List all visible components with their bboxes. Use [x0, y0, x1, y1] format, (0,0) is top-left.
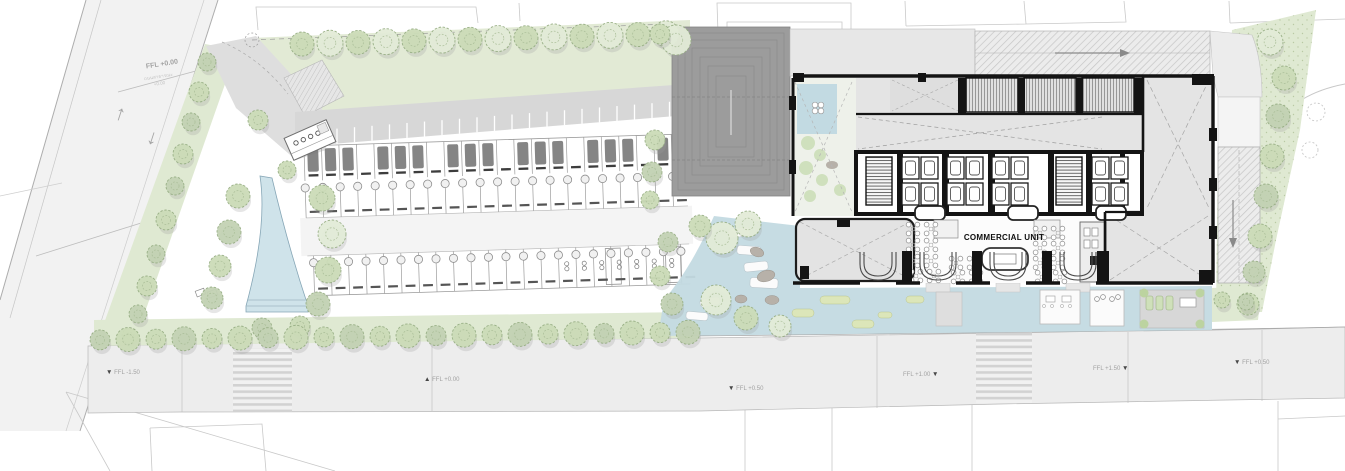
tree-canopy [769, 315, 791, 337]
lift-car [921, 157, 938, 179]
planter-circle [397, 256, 405, 264]
planter-circle [528, 177, 536, 185]
wheel-stop [625, 201, 635, 204]
tree-canopy [317, 30, 343, 56]
parked-car [412, 145, 424, 168]
chair [906, 238, 911, 243]
planter-circle [336, 183, 344, 191]
tree-canopy [597, 22, 623, 48]
stall-divider [463, 184, 464, 213]
chair [924, 222, 929, 227]
chair [1060, 226, 1065, 231]
chair [924, 231, 929, 236]
planter-circle [511, 177, 519, 185]
chair [1042, 235, 1047, 240]
stall-divider [391, 143, 392, 178]
chair [1033, 250, 1038, 255]
wheel-stop [336, 287, 346, 290]
tree-canopy [734, 306, 758, 330]
wheel-stop [388, 285, 398, 288]
tree-canopy [620, 321, 644, 345]
chair [1042, 226, 1047, 231]
tree-canopy [661, 293, 683, 315]
lift-car [1011, 157, 1028, 179]
stall-divider [428, 185, 429, 214]
wheel-stop [598, 278, 608, 281]
chair [1033, 226, 1038, 231]
tree-canopy [429, 27, 455, 53]
stall-divider [549, 138, 550, 173]
wheel-stop [563, 280, 573, 283]
parked-car [587, 140, 599, 163]
stall-divider [603, 180, 604, 209]
tree-canopy [676, 320, 700, 344]
tree-canopy [538, 324, 558, 344]
wheel-stop [588, 165, 598, 168]
tree-canopy [650, 323, 670, 343]
planter-circle [379, 256, 387, 264]
stall-divider [514, 139, 515, 174]
tree-canopy [452, 323, 476, 347]
stall-divider [393, 186, 394, 215]
stall-divider [445, 185, 446, 214]
stall-divider [515, 182, 516, 211]
stall-divider [480, 183, 481, 212]
stall-divider [479, 140, 480, 175]
building [789, 29, 1262, 284]
stair-flight [1056, 157, 1082, 205]
planter-circle [344, 257, 352, 265]
escalator-block [966, 78, 1018, 112]
planter-circle [388, 181, 396, 189]
motorcycle-symbol [565, 262, 569, 266]
tree-canopy [485, 26, 511, 52]
west-garden [195, 120, 336, 312]
wheel-stop [476, 282, 486, 285]
tree-canopy [129, 305, 147, 323]
stall-divider [461, 141, 462, 176]
crosswalk-west [233, 348, 292, 412]
wheel-stop [493, 282, 503, 285]
chair [1033, 256, 1038, 261]
parked-car [325, 148, 337, 171]
tree-canopy [650, 266, 670, 286]
wheel-stop [660, 200, 670, 203]
stall-divider [566, 138, 567, 173]
tree-canopy [156, 210, 176, 230]
chair [933, 238, 938, 243]
wheel-stop [537, 203, 547, 206]
chair [1062, 279, 1067, 284]
stall-divider [356, 144, 357, 179]
escalator-block [1024, 78, 1076, 112]
tree-canopy [508, 322, 532, 346]
stall-divider [550, 181, 551, 210]
stall-divider [305, 189, 306, 218]
chair [1053, 270, 1058, 275]
lift-car [947, 183, 964, 205]
motorcycle-symbol [582, 261, 586, 265]
wheel-stop [553, 166, 563, 169]
stall-divider [340, 188, 341, 217]
wheel-stop [623, 164, 633, 167]
stall-divider [568, 181, 569, 210]
chair [915, 231, 920, 236]
tree-canopy [1272, 66, 1296, 90]
chair [924, 238, 929, 243]
chair [1033, 265, 1038, 270]
wheel-stop [467, 206, 477, 209]
tree-canopy [645, 130, 665, 150]
wheel-stop [520, 204, 530, 207]
wheel-stop [326, 173, 336, 176]
tree-canopy [202, 328, 222, 348]
stair-flight [866, 157, 892, 205]
wheel-stop [362, 209, 372, 212]
lift-car [1111, 157, 1128, 179]
chair [933, 231, 938, 236]
wheel-stop [449, 170, 459, 173]
planter-circle [563, 175, 571, 183]
tree-canopy [306, 292, 330, 316]
tree-canopy [594, 323, 614, 343]
lift-car [902, 183, 919, 205]
stall-divider [601, 137, 602, 172]
tree-canopy [514, 26, 538, 50]
tree-canopy [641, 191, 659, 209]
planter-circle [371, 182, 379, 190]
stall-divider [531, 139, 532, 174]
planter-circle [519, 252, 527, 260]
chair [1051, 241, 1056, 246]
planter-circle [607, 249, 615, 257]
tree-canopy [146, 329, 166, 349]
chair [915, 222, 920, 227]
lift-car [1011, 183, 1028, 205]
wheel-stop [432, 207, 442, 210]
stall-divider [358, 187, 359, 216]
lift-car [1111, 183, 1128, 205]
stall-divider [620, 179, 621, 208]
planter-circle [572, 250, 580, 258]
lift-car [947, 157, 964, 179]
planter-circle [546, 176, 554, 184]
chair [1051, 235, 1056, 240]
tree-canopy [689, 215, 711, 237]
planter-circle [353, 182, 361, 190]
tree-canopy [402, 29, 426, 53]
tree-canopy [201, 287, 223, 309]
stall-divider [339, 145, 340, 180]
tree-canopy [318, 220, 346, 248]
reflecting-pool [246, 176, 308, 312]
planter-circle [493, 178, 501, 186]
planter-circle [624, 249, 632, 257]
planter-circle [362, 257, 370, 265]
chair [1033, 235, 1038, 240]
stall-divider [619, 136, 620, 171]
wheel-stop [511, 281, 521, 284]
parked-car [482, 143, 494, 166]
parked-car [395, 146, 407, 169]
wheel-stop [546, 280, 556, 283]
wheel-stop [633, 277, 643, 280]
wheel-stop [371, 286, 381, 289]
tree-canopy [182, 113, 200, 131]
chair [958, 256, 963, 261]
tree-canopy [373, 29, 399, 55]
lift-car [902, 157, 919, 179]
tree-canopy [198, 53, 216, 71]
tree-canopy [1266, 104, 1290, 128]
stall-divider [638, 179, 639, 208]
tree-canopy [228, 326, 252, 350]
wheel-stop [345, 209, 355, 212]
planter-circle [458, 179, 466, 187]
wheel-stop [590, 202, 600, 205]
stall-divider [444, 142, 445, 177]
planter-circle [423, 180, 431, 188]
planter-circle [633, 173, 641, 181]
motorcycle-symbol [565, 267, 569, 271]
chair [915, 254, 920, 259]
tree-canopy [172, 327, 196, 351]
lift-car [966, 157, 983, 179]
parked-car [622, 139, 634, 162]
west-terrace [796, 219, 914, 281]
tree-canopy [650, 24, 670, 44]
spiral-ramp-structure [672, 27, 790, 196]
planter-circle [589, 250, 597, 258]
parked-car [447, 144, 459, 167]
wheel-stop [571, 166, 581, 169]
lift-car [1092, 157, 1109, 179]
chair [1051, 226, 1056, 231]
wheel-stop [380, 208, 390, 211]
tree-canopy [642, 162, 662, 182]
tree-canopy [226, 184, 250, 208]
wheel-stop [450, 206, 460, 209]
wheel-stop [485, 205, 495, 208]
tree-canopy [258, 328, 278, 348]
wheel-stop [536, 167, 546, 170]
parked-car [377, 146, 389, 169]
stall-divider [375, 187, 376, 216]
lift-car [992, 183, 1009, 205]
tree-canopy [173, 144, 193, 164]
wheel-stop [353, 286, 363, 289]
wheel-stop [616, 278, 626, 281]
stall-divider [498, 183, 499, 212]
motorcycle-symbol [652, 259, 656, 263]
wheel-stop [423, 284, 433, 287]
tree-canopy [346, 30, 370, 54]
stall-divider [426, 142, 427, 177]
tree-canopy [90, 330, 110, 350]
tree-canopy [1238, 294, 1254, 310]
motorcycle-symbol [582, 266, 586, 270]
tree-canopy [340, 325, 364, 349]
wheel-stop [581, 279, 591, 282]
wheel-stop [309, 174, 319, 177]
stall-divider [409, 143, 410, 178]
chair [933, 254, 938, 259]
chair [1060, 241, 1065, 246]
lift-car [921, 183, 938, 205]
tree-canopy [482, 325, 502, 345]
tree-canopy [147, 245, 165, 263]
tree-canopy [189, 82, 209, 102]
stall-divider [533, 182, 534, 211]
escalator-block [1082, 78, 1134, 112]
planter-circle [554, 251, 562, 259]
tree-canopy [1254, 184, 1278, 208]
motorcycle-symbol [600, 266, 604, 270]
tree-canopy [396, 324, 420, 348]
planter-circle [414, 255, 422, 263]
parked-car [605, 139, 617, 162]
tree-canopy [1214, 292, 1230, 308]
chair [924, 254, 929, 259]
parked-car [535, 141, 547, 164]
chair [1042, 241, 1047, 246]
tree-canopy [278, 161, 296, 179]
wheel-stop [318, 287, 328, 290]
chair [933, 222, 938, 227]
stall-divider [636, 136, 637, 171]
planter-circle [537, 251, 545, 259]
chair [967, 256, 972, 261]
wheel-stop [677, 199, 687, 202]
site-plan-drawing [0, 0, 1345, 471]
planter-circle [449, 254, 457, 262]
chair [915, 238, 920, 243]
planter-circle [642, 248, 650, 256]
planter-circle [467, 254, 475, 262]
lift-car [1092, 183, 1109, 205]
planter-circle [441, 179, 449, 187]
tree-canopy [217, 220, 241, 244]
planter-circle [301, 184, 309, 192]
tree-canopy [116, 328, 140, 352]
lift-car [992, 157, 1009, 179]
site-plan-page: FFL +0.00 ถนนสาธารณะ +0.00 ↑ ↓ COMMERCIA… [0, 0, 1345, 471]
chair [1035, 270, 1040, 275]
tree-canopy [458, 27, 482, 51]
crosswalk-east [976, 331, 1032, 403]
parked-car [517, 142, 529, 165]
wheel-stop [396, 171, 406, 174]
motorcycle-symbol [635, 259, 639, 263]
tree-canopy [1243, 261, 1265, 283]
surface-parking [298, 134, 696, 296]
wheel-stop [379, 172, 389, 175]
chair [924, 247, 929, 252]
tree-canopy [314, 327, 334, 347]
wheel-stop [518, 167, 528, 170]
wheel-stop [528, 281, 538, 284]
lift-core [856, 152, 1142, 220]
wheel-stop [397, 208, 407, 211]
wheel-stop [607, 201, 617, 204]
wheel-stop [501, 168, 511, 171]
tree-canopy [248, 110, 268, 130]
motorcycle-symbol [635, 264, 639, 268]
chair [906, 231, 911, 236]
tree-canopy [137, 276, 157, 296]
tree-canopy [309, 185, 335, 211]
tree-canopy [290, 32, 314, 56]
chair [933, 247, 938, 252]
tree-canopy [1260, 144, 1284, 168]
tree-canopy [209, 255, 231, 277]
chair [1060, 235, 1065, 240]
wheel-stop [441, 283, 451, 286]
chair [1033, 241, 1038, 246]
chair [906, 222, 911, 227]
tree-canopy [166, 177, 184, 195]
tree-canopy [564, 322, 588, 346]
tree-canopy [370, 326, 390, 346]
chair [960, 270, 965, 275]
planter-circle [406, 180, 414, 188]
wheel-stop [361, 172, 371, 175]
stall-divider [584, 137, 585, 172]
planter-circle [581, 175, 589, 183]
stall-divider [496, 140, 497, 175]
chair [936, 269, 941, 274]
planter-circle [484, 253, 492, 261]
wheel-stop [414, 171, 424, 174]
parked-car [342, 147, 354, 170]
chair [967, 265, 972, 270]
wheel-stop [458, 283, 468, 286]
chair [951, 279, 956, 284]
tree-canopy [426, 326, 446, 346]
tree-canopy [701, 285, 731, 315]
wheel-stop [406, 285, 416, 288]
tree-canopy [1248, 224, 1272, 248]
wheel-stop [572, 202, 582, 205]
wheel-stop [466, 169, 476, 172]
lift-car [966, 183, 983, 205]
chair [933, 263, 938, 268]
tree-canopy [570, 24, 594, 48]
wheel-stop [415, 207, 425, 210]
motorcycle-symbol [600, 261, 604, 265]
planter-circle [432, 255, 440, 263]
wheel-stop [606, 165, 616, 168]
wheel-stop [431, 170, 441, 173]
stall-divider [585, 180, 586, 209]
tree-canopy [1257, 29, 1283, 55]
tree-canopy [541, 24, 567, 50]
chair [915, 247, 920, 252]
stall-divider [410, 186, 411, 215]
wheel-stop [344, 173, 354, 176]
wheel-stop [502, 204, 512, 207]
stall-divider [374, 144, 375, 179]
planter-circle [476, 178, 484, 186]
tree-canopy [315, 257, 341, 283]
tree-canopy [284, 325, 308, 349]
planter-circle [616, 174, 624, 182]
planter-circle [598, 174, 606, 182]
tree-canopy [626, 23, 650, 47]
chair [915, 263, 920, 268]
tree-canopy [735, 211, 761, 237]
wheel-stop [555, 203, 565, 206]
